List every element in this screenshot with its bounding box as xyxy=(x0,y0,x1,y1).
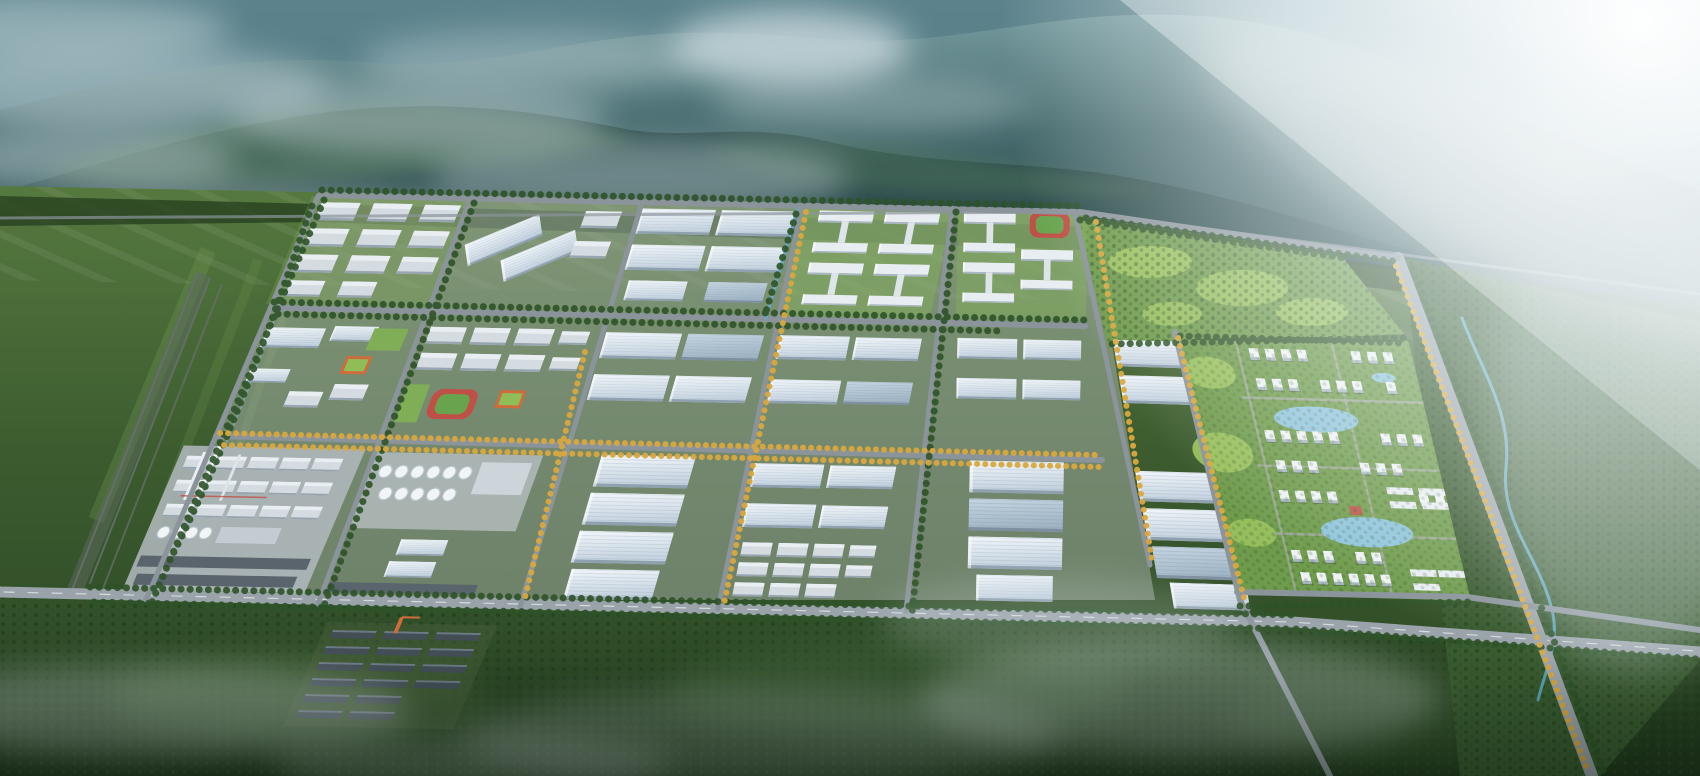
bottom-vignette xyxy=(0,656,1700,776)
process-unit xyxy=(215,527,282,544)
aerial-render-image xyxy=(0,0,1700,776)
scene-canvas xyxy=(0,0,1700,776)
